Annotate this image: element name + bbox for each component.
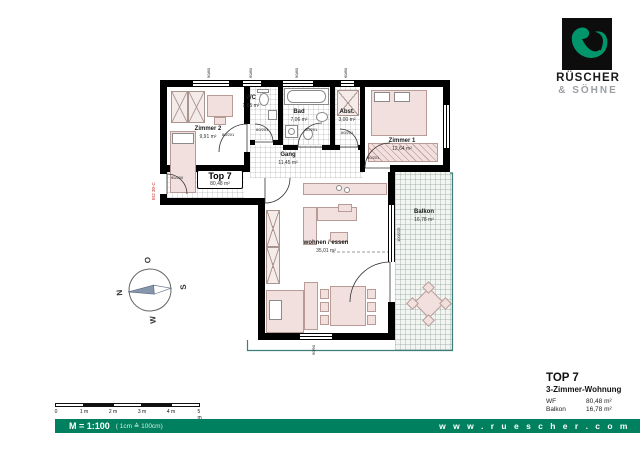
scale-tick-label: 1 m bbox=[80, 409, 88, 415]
info-subtitle: 3-Zimmer-Wohnung bbox=[546, 385, 621, 394]
room-area: 7,06 m² bbox=[286, 117, 312, 123]
wall bbox=[354, 80, 450, 87]
dining-chair bbox=[320, 315, 329, 325]
wall bbox=[160, 80, 193, 87]
website-url: w w w . r u e s c h e r . c o m bbox=[439, 421, 630, 431]
dining-chair bbox=[367, 302, 376, 312]
wall bbox=[388, 172, 395, 205]
sideboard bbox=[304, 282, 318, 330]
door-size-label: 60/201 bbox=[256, 128, 268, 132]
room-name: Abst. bbox=[332, 109, 362, 117]
scale-tick-label: 2 m bbox=[109, 409, 117, 415]
wall bbox=[244, 152, 250, 172]
wall bbox=[258, 205, 265, 340]
wall bbox=[335, 145, 340, 150]
room-area: 35,01 m² bbox=[294, 248, 358, 254]
room-label-zimmer1: Zimmer 1 12,64 m² bbox=[380, 138, 424, 152]
wall bbox=[360, 87, 365, 172]
info-value: 16,78 m² bbox=[586, 406, 612, 413]
brand-name-line2: & SÖHNE bbox=[550, 85, 626, 96]
window bbox=[193, 80, 229, 87]
scale-tick-label: 3 m bbox=[138, 409, 146, 415]
wall bbox=[283, 145, 298, 150]
company-logo bbox=[562, 18, 612, 70]
footer-bar: M = 1:100 ( 1cm ≙ 100cm) w w w . r u e s… bbox=[55, 419, 640, 433]
wall bbox=[332, 333, 395, 340]
door-size-label: 100/225 bbox=[397, 222, 401, 242]
washbasin bbox=[316, 112, 328, 122]
room-name: WC bbox=[237, 95, 265, 103]
window-dimension-mark: 60/80 bbox=[344, 66, 348, 78]
wall bbox=[250, 140, 255, 145]
door-size-label: 90/200 bbox=[171, 176, 183, 180]
dining-table bbox=[330, 286, 366, 326]
balcony-window bbox=[388, 205, 395, 262]
dining-chair bbox=[320, 302, 329, 312]
side-table bbox=[338, 204, 352, 212]
door-size-label: 80/201 bbox=[367, 156, 379, 160]
wall bbox=[160, 87, 167, 174]
room-name: Gang bbox=[272, 152, 304, 160]
entrance-fire-rating: EI2 30-C bbox=[152, 166, 157, 200]
room-label-balkon: Balkon 16,78 m² bbox=[404, 209, 444, 223]
desk bbox=[207, 95, 233, 117]
door-size-label: 80/201 bbox=[305, 128, 317, 132]
scale-segment bbox=[55, 403, 84, 407]
gang-floor-tiles bbox=[250, 145, 363, 178]
window bbox=[283, 80, 313, 87]
hand-basin bbox=[268, 110, 277, 120]
room-label-wc: WC 1,65 m² bbox=[237, 95, 265, 109]
info-title: TOP 7 bbox=[546, 372, 579, 384]
logo-swoosh-icon bbox=[562, 18, 612, 70]
room-area: 3,00 m² bbox=[332, 117, 362, 123]
wall bbox=[258, 333, 300, 340]
room-area: 16,78 m² bbox=[404, 217, 444, 223]
room-name: Zimmer 1 bbox=[380, 138, 424, 146]
wall bbox=[322, 145, 335, 150]
balcony-floor-grid bbox=[395, 172, 452, 350]
dining-chair bbox=[367, 315, 376, 325]
room-area: 1,65 m² bbox=[237, 103, 265, 109]
wall bbox=[229, 80, 243, 87]
room-label-wohnen-essen: wohnen / essen 35,01 m² bbox=[294, 240, 358, 254]
info-label: Balkon bbox=[546, 406, 586, 413]
scale-tick-label: 4 m bbox=[167, 409, 175, 415]
window-dimension-mark: 90/90 bbox=[312, 343, 316, 355]
wall bbox=[313, 80, 341, 87]
kitchen-sink bbox=[269, 300, 282, 320]
room-area: 12,64 m² bbox=[380, 146, 424, 152]
door-size-label: 80/201 bbox=[222, 133, 234, 137]
room-label-gang: Gang 11,45 m² bbox=[272, 152, 304, 166]
bathtub-inner bbox=[287, 90, 326, 103]
wall bbox=[443, 87, 450, 105]
window bbox=[443, 105, 450, 148]
scale-text: M = 1:100 bbox=[69, 421, 110, 431]
wall bbox=[388, 302, 395, 340]
wall bbox=[261, 80, 283, 87]
scale-tick-label: 0 bbox=[55, 409, 58, 415]
tall-cabinet bbox=[266, 210, 280, 247]
room-name: Bad bbox=[286, 109, 312, 117]
door-size-label: 60/201 bbox=[341, 131, 353, 135]
window-dimension-mark: 90/80 bbox=[207, 66, 211, 78]
pillow bbox=[374, 92, 390, 102]
washing-machine-drum bbox=[288, 128, 295, 135]
unit-area: 80,48 m² bbox=[198, 182, 242, 188]
wall bbox=[390, 165, 450, 172]
window-dimension-mark: 90/80 bbox=[295, 66, 299, 78]
floor-plan: Zimmer 2 9,91 m² WC 1,65 m² Bad 7,06 m² … bbox=[0, 0, 640, 452]
info-row-wf: WF 80,48 m² bbox=[546, 398, 626, 405]
room-label-bad: Bad 7,06 m² bbox=[286, 109, 312, 123]
unit-label-box: Top 7 80,48 m² bbox=[197, 170, 243, 189]
room-name: Balkon bbox=[404, 209, 444, 217]
chair bbox=[214, 117, 226, 125]
window bbox=[300, 333, 332, 340]
window bbox=[341, 80, 354, 87]
info-row-balkon: Balkon 16,78 m² bbox=[546, 406, 626, 413]
window-dimension-mark: 60/80 bbox=[249, 66, 253, 78]
wall bbox=[273, 140, 283, 145]
scale-segment bbox=[84, 403, 113, 407]
tall-cabinet bbox=[266, 247, 280, 284]
plan-linework bbox=[0, 0, 640, 452]
wardrobe bbox=[171, 91, 188, 123]
scale-segment bbox=[113, 403, 142, 407]
cooktop-burner bbox=[336, 185, 342, 191]
room-label-abst: Abst. 3,00 m² bbox=[332, 109, 362, 123]
brand-name-line1: RÜSCHER bbox=[550, 72, 626, 84]
dining-chair bbox=[367, 289, 376, 299]
scale-segment bbox=[142, 403, 171, 407]
scale-segment bbox=[171, 403, 200, 407]
dining-chair bbox=[320, 289, 329, 299]
info-value: 80,48 m² bbox=[586, 398, 612, 405]
wardrobe bbox=[188, 91, 205, 123]
scale-note: ( 1cm ≙ 100cm) bbox=[116, 422, 163, 430]
wall bbox=[160, 198, 265, 205]
room-name: wohnen / essen bbox=[294, 240, 358, 248]
scale-bar: 0 1 m 2 m 3 m 4 m 5 m bbox=[55, 401, 205, 415]
info-label: WF bbox=[546, 398, 586, 405]
pillow bbox=[394, 92, 410, 102]
wall bbox=[278, 87, 283, 145]
cooktop-burner bbox=[344, 187, 350, 193]
room-area: 11,45 m² bbox=[272, 160, 304, 166]
window bbox=[243, 80, 261, 87]
